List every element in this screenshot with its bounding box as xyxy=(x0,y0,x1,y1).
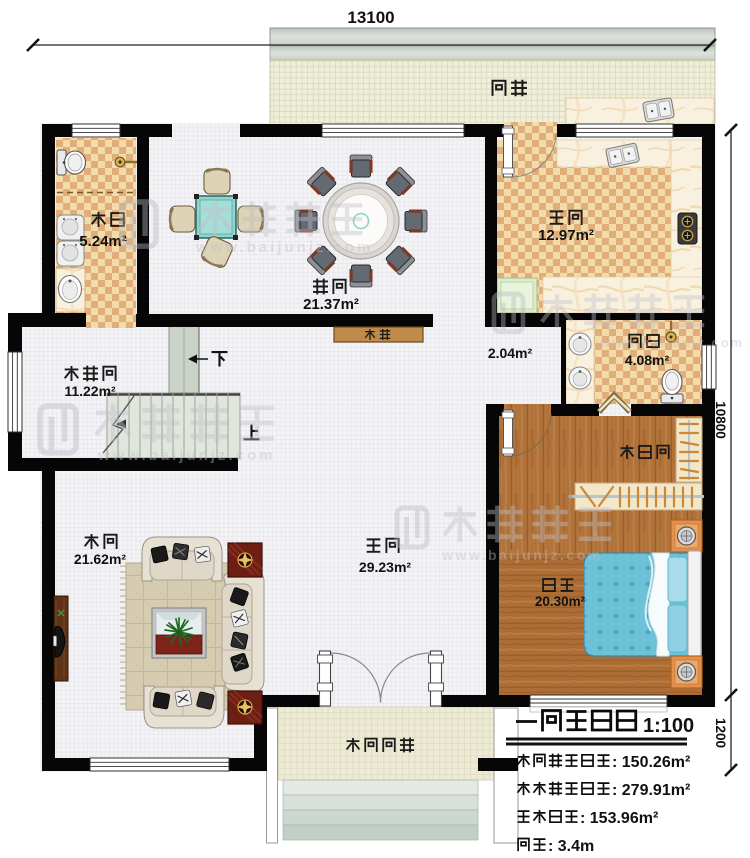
svg-text:10800: 10800 xyxy=(713,401,728,439)
svg-text:www.baijunjz.com: www.baijunjz.com xyxy=(441,547,603,563)
svg-text:21.62m²: 21.62m² xyxy=(74,551,126,567)
svg-text:1:100: 1:100 xyxy=(643,715,694,737)
svg-text:: 153.96m²: : 153.96m² xyxy=(580,810,658,827)
svg-text:: 279.91m²: : 279.91m² xyxy=(612,782,690,799)
svg-text:www.baijunjz.com: www.baijunjz.com xyxy=(195,239,373,256)
svg-text:29.23m²: 29.23m² xyxy=(359,559,411,575)
svg-text:1200: 1200 xyxy=(713,718,728,748)
svg-text:21.37m²: 21.37m² xyxy=(303,296,359,313)
svg-text:11.22m²: 11.22m² xyxy=(64,383,116,399)
svg-text:: 3.4m: : 3.4m xyxy=(548,838,594,855)
svg-text:2.04m²: 2.04m² xyxy=(488,345,533,361)
svg-text:www.baijunjz.com: www.baijunjz.com xyxy=(599,335,744,350)
svg-text:: 150.26m²: : 150.26m² xyxy=(612,754,690,771)
svg-text:4.08m²: 4.08m² xyxy=(625,352,670,368)
svg-text:www.baijunjz.com: www.baijunjz.com xyxy=(97,447,275,464)
svg-text:12.97m²: 12.97m² xyxy=(538,227,594,244)
svg-text:13100: 13100 xyxy=(347,8,394,27)
svg-text:20.30m²: 20.30m² xyxy=(535,594,586,609)
